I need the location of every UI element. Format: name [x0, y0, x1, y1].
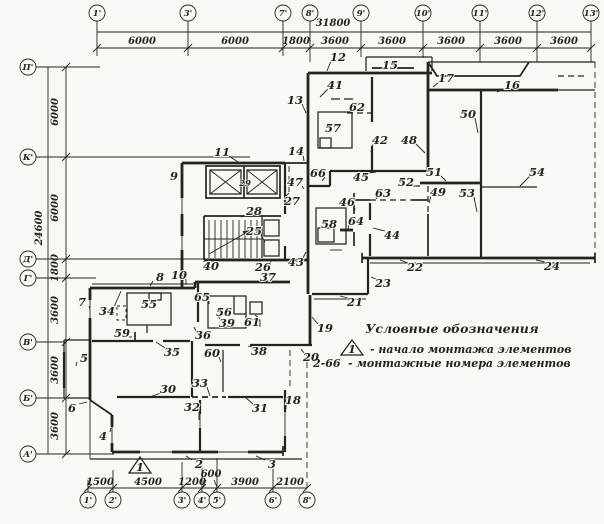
- montage-number: 27: [283, 194, 300, 208]
- montage-number: 50: [460, 107, 476, 121]
- montage-number: 41: [327, 78, 343, 92]
- montage-number: 59: [114, 326, 130, 340]
- montage-number: 61: [244, 315, 260, 329]
- montage-number: 49: [430, 185, 446, 199]
- dimension-value: 3600: [50, 412, 61, 440]
- dimension-value: 3600: [437, 36, 465, 47]
- montage-number: 33: [192, 376, 208, 390]
- montage-number: 19: [317, 321, 333, 335]
- axis-label: 4': [198, 496, 207, 506]
- axis-label: 3': [178, 496, 187, 506]
- dimension-value: 4500: [134, 477, 162, 488]
- legend-start-symbol: 1: [348, 342, 356, 356]
- montage-number: 15: [382, 58, 398, 72]
- dimension-value: 1800: [50, 254, 61, 282]
- dimension-value: 3600: [378, 36, 406, 47]
- dimension-value: 3600: [50, 356, 61, 384]
- montage-number: 31: [252, 401, 268, 415]
- montage-number: 37: [260, 270, 276, 284]
- montage-number: 25: [245, 224, 262, 238]
- axis-label: В': [22, 338, 33, 348]
- dimension-value: 2100: [275, 477, 304, 488]
- montage-number: 38: [251, 344, 267, 358]
- axis-label: 13': [584, 9, 598, 19]
- dimension-value: 3600: [50, 296, 61, 324]
- montage-number: 35: [164, 345, 180, 359]
- axis-label: К': [22, 153, 33, 163]
- dimension-value: 6000: [128, 36, 156, 47]
- montage-number: 66: [310, 166, 326, 180]
- axis-label: Б': [22, 394, 33, 404]
- axis-label: 2': [108, 496, 118, 506]
- axis-label: 6': [269, 496, 278, 506]
- elevator-x-icon: [210, 170, 241, 194]
- legend-start-text: - начало монтажа элементов: [370, 343, 571, 356]
- axis-label: 1': [84, 496, 93, 506]
- montage-number: 58: [321, 217, 337, 231]
- dimension-value: 3600: [321, 36, 349, 47]
- axis-label: Г': [23, 274, 32, 284]
- montage-number: 45: [353, 170, 369, 184]
- montage-number: 2: [194, 457, 203, 471]
- dimension-value: 600: [201, 469, 222, 480]
- montage-number: 32: [184, 400, 200, 414]
- legend-range-symbol: 2-66: [312, 357, 341, 370]
- montage-number: 10: [171, 268, 187, 282]
- montage-number: 18: [285, 393, 301, 407]
- legend-range-text: - монтажные номера элементов: [348, 357, 571, 370]
- dimension-value: 1800: [282, 36, 310, 47]
- montage-number: 51: [426, 165, 442, 179]
- montage-number: 46: [339, 195, 355, 209]
- montage-number: 42: [372, 133, 388, 147]
- dimension-value: 3600: [494, 36, 522, 47]
- legend-title: Условные обозначения: [365, 321, 539, 336]
- axis-label: П': [22, 63, 34, 73]
- elevator-x-icon: [247, 170, 277, 194]
- leader-line: [416, 144, 425, 153]
- axis-label: А': [22, 450, 33, 460]
- montage-number: 17: [438, 71, 454, 85]
- montage-number: 9: [170, 169, 178, 183]
- axis-label: 3': [184, 9, 193, 19]
- montage-number: 5: [80, 351, 88, 365]
- montage-number: 6: [68, 401, 76, 415]
- montage-number: 64: [348, 214, 364, 228]
- montage-number: 16: [504, 78, 520, 92]
- legend: Условные обозначения 1 - начало монтажа …: [312, 321, 571, 370]
- montage-number: 11: [214, 145, 230, 159]
- montage-number: 60: [204, 346, 220, 360]
- axis-label: 10': [416, 9, 430, 19]
- montage-number: 47: [287, 175, 303, 189]
- montage-number: 44: [384, 228, 400, 242]
- montage-number: 29: [238, 179, 251, 189]
- dimension-value: 3900: [231, 477, 259, 488]
- balcony-5: [64, 340, 90, 398]
- montage-number: 13: [287, 93, 303, 107]
- leader-line: [114, 291, 121, 307]
- floor-plan-drawing: 1'3'7'8'9'10'11'12'13'600060001800360036…: [0, 0, 604, 524]
- axis-label: 9': [357, 9, 366, 19]
- montage-number: 65: [194, 290, 210, 304]
- leader-line: [110, 428, 111, 432]
- axis-label: 1': [93, 9, 102, 19]
- montage-number: 34: [99, 304, 115, 318]
- dimension-value: 1500: [86, 477, 114, 488]
- montage-number: 22: [406, 260, 423, 274]
- montage-number: 30: [160, 382, 176, 396]
- montage-number: 53: [459, 186, 475, 200]
- montage-number: 48: [401, 133, 417, 147]
- montage-number: 7: [78, 295, 86, 309]
- montage-number: 54: [529, 165, 545, 179]
- montage-number: 36: [195, 328, 211, 342]
- montage-number: 4: [99, 429, 107, 443]
- montage-number: 63: [375, 186, 391, 200]
- montage-number: 28: [245, 204, 262, 218]
- leader-line: [150, 281, 153, 286]
- axis-label: 5': [213, 496, 222, 506]
- montage-number: 40: [203, 259, 219, 273]
- axis-label: 8': [306, 9, 315, 19]
- leader-line: [76, 362, 77, 366]
- montage-numbers-layer: 2345678910111213141516171819202122232425…: [68, 50, 560, 471]
- axis-label: 12': [530, 9, 544, 19]
- overall-dimension: 31800: [316, 18, 351, 29]
- leader-line: [368, 172, 376, 173]
- overall-dimension: 24600: [34, 211, 45, 247]
- montage-number: 52: [398, 175, 414, 189]
- montage-number: 62: [349, 100, 365, 114]
- dimension-value: 6000: [50, 194, 61, 222]
- montage-number: 57: [325, 121, 341, 135]
- axis-label: 8': [303, 496, 312, 506]
- montage-number: 8: [156, 270, 164, 284]
- dimension-value: 6000: [221, 36, 249, 47]
- montage-number: 24: [543, 259, 560, 273]
- axis-label: 7': [279, 9, 288, 19]
- dimension-value: 6000: [50, 98, 61, 126]
- dimension-value: 3600: [550, 36, 578, 47]
- montage-number: 23: [374, 276, 391, 290]
- leader-line: [79, 402, 87, 404]
- axis-label: Д': [22, 255, 33, 265]
- montage-number: 14: [288, 144, 304, 158]
- montage-number: 43: [288, 255, 304, 269]
- montage-number: 21: [346, 295, 363, 309]
- blueprint-canvas: 1'3'7'8'9'10'11'12'13'600060001800360036…: [0, 0, 604, 524]
- montage-number: 55: [141, 297, 157, 311]
- montage-number: 12: [330, 50, 346, 64]
- montage-number: 56: [216, 305, 232, 319]
- axis-label: 11': [473, 9, 487, 19]
- dimension-lines: [36, 32, 591, 492]
- assembly-start-number: 1: [136, 460, 144, 474]
- montage-number: 3: [268, 457, 276, 471]
